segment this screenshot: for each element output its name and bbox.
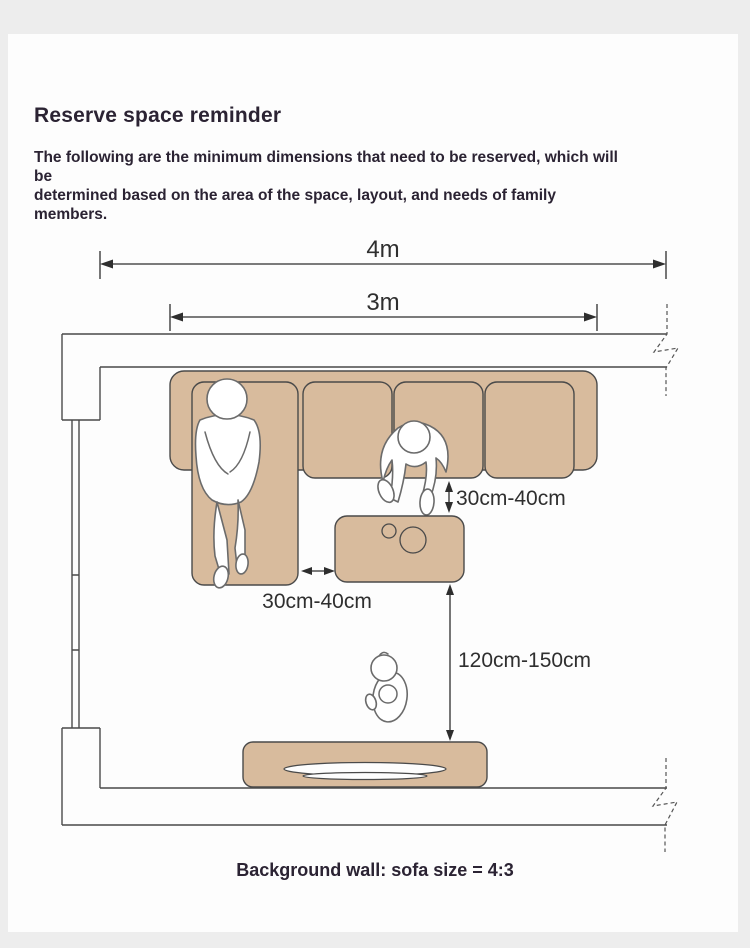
- diagram-caption: Background wall: sofa size = 4:3: [0, 860, 750, 881]
- floor-plan-diagram: 4m 3m: [0, 0, 750, 948]
- dimension-walkway-label: 120cm-150cm: [458, 649, 591, 672]
- tv-base-icon: [303, 773, 427, 780]
- dimension-walkway: 120cm-150cm: [446, 584, 591, 741]
- window-left: [72, 420, 79, 728]
- dimension-3m-label: 3m: [366, 289, 399, 316]
- sofa-cushion: [485, 382, 574, 478]
- dimension-4m-label: 4m: [366, 236, 399, 263]
- sofa-cushion: [303, 382, 392, 478]
- dimension-3m: 3m: [170, 289, 597, 331]
- wall-break-bottom-icon: [653, 758, 677, 852]
- dimension-front-gap: 30cm-40cm: [445, 481, 566, 513]
- dimension-4m: 4m: [100, 236, 666, 279]
- wall-break-top-icon: [654, 304, 678, 396]
- dimension-front-gap-label: 30cm-40cm: [456, 487, 566, 510]
- tv-stand: [243, 742, 487, 787]
- dimension-side-gap-label: 30cm-40cm: [262, 590, 372, 613]
- person-toddler: [364, 652, 411, 724]
- page: { "header": { "title": "Reserve space re…: [0, 0, 750, 948]
- coffee-table: [335, 516, 464, 582]
